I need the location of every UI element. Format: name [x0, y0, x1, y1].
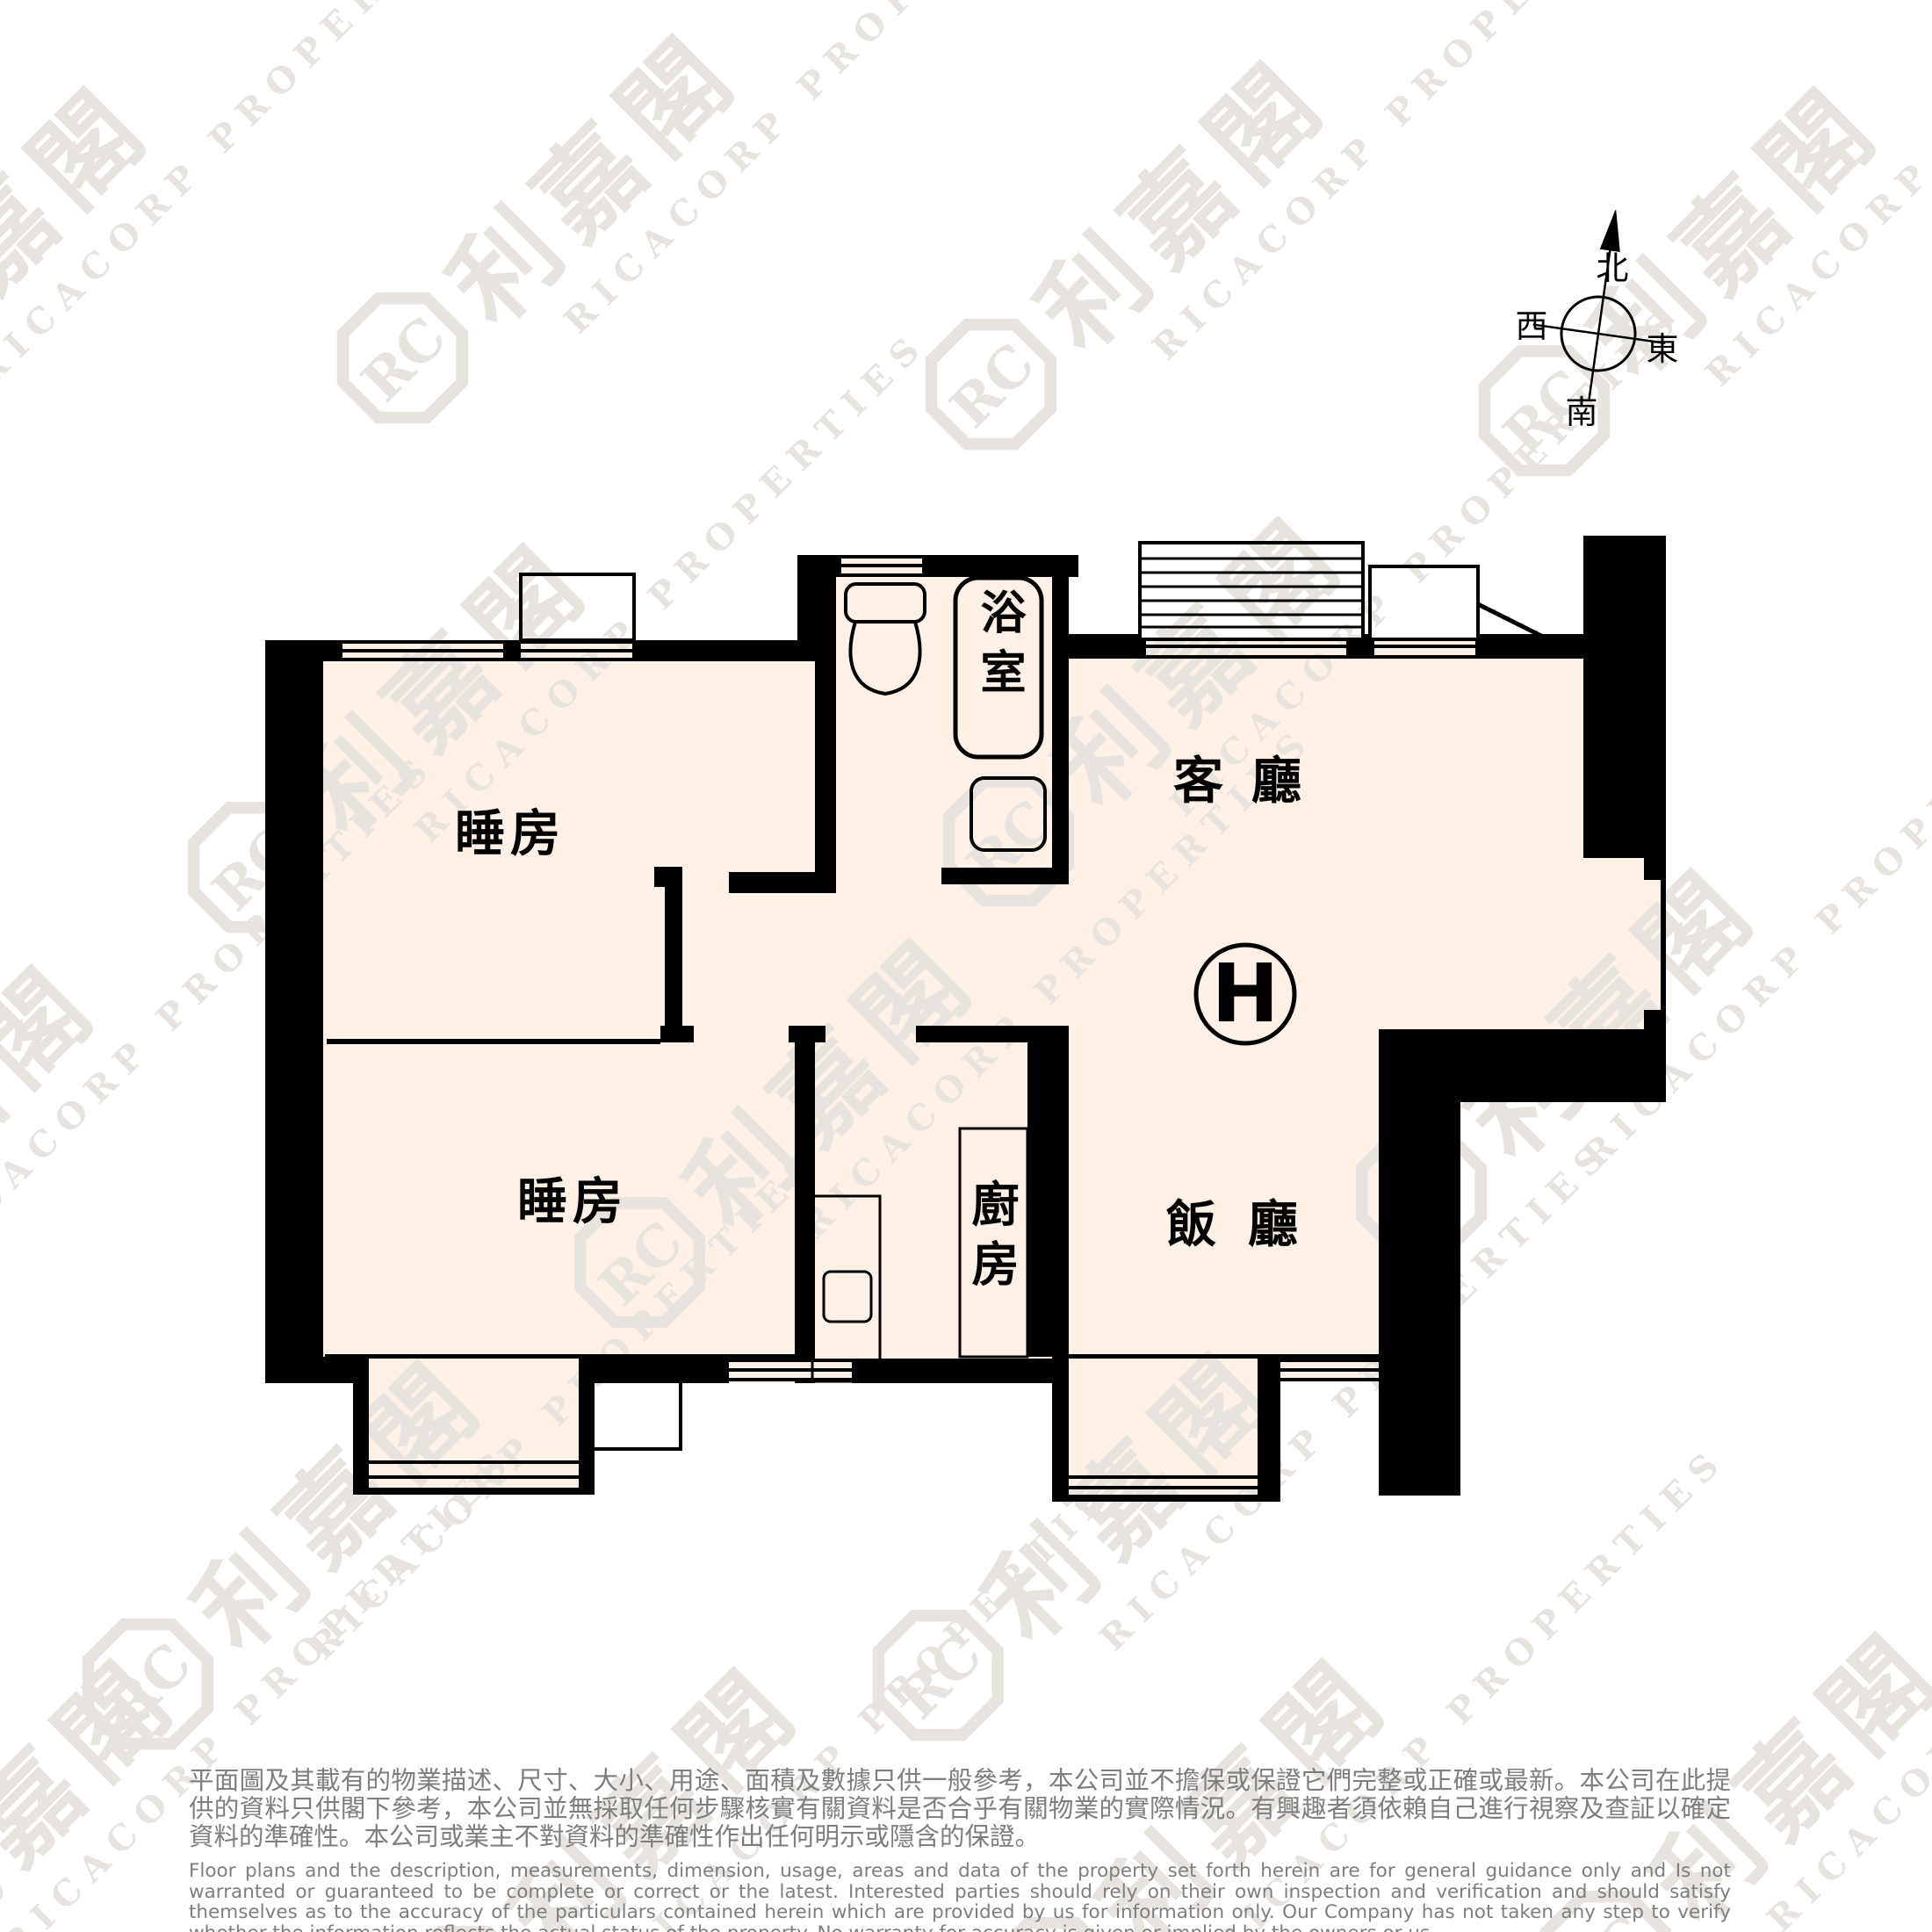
floorplan-page: RC [0, 0, 1932, 1932]
bay-window-glazing [369, 1475, 580, 1479]
disclaimer-block: 平面圖及其載有的物業描述、尺寸、大小、用途、面積及數據只供一般參考，本公司並不擔… [189, 1767, 1731, 1932]
window-box-living [1370, 566, 1478, 639]
service-notch [595, 1383, 682, 1449]
disclaimer-english: Floor plans and the description, measure… [189, 1861, 1731, 1932]
compass: 北 南 西 東 [1516, 201, 1683, 431]
compass-north-arrow [1600, 209, 1625, 252]
dining-bay-glazing [1069, 1486, 1258, 1489]
window-dining [1280, 1359, 1379, 1381]
label-living-room: 客廳 [1173, 757, 1330, 807]
label-dining-room: 飯廳 [1166, 1200, 1330, 1251]
label-bedroom-top: 睡房 [455, 810, 566, 860]
floor-plan: RC [0, 0, 1932, 1932]
compass-south-label: 南 [1566, 393, 1598, 431]
compass-west-label: 西 [1516, 307, 1548, 345]
window-kitchen [729, 1359, 852, 1381]
unit-letter: H [1212, 947, 1280, 1041]
dining-bay-glazing [1069, 1475, 1258, 1479]
compass-east-label: 東 [1647, 330, 1679, 368]
bay-window-glazing [369, 1460, 580, 1464]
window-bathroom [841, 555, 922, 577]
window-bedroom-top-2 [521, 640, 632, 661]
window-bedroom-top-1 [342, 640, 503, 661]
label-bathroom: 浴室 [976, 588, 1021, 708]
label-bedroom-bottom: 睡房 [517, 1178, 628, 1228]
compass-north-label: 北 [1597, 249, 1629, 287]
disclaimer-chinese: 平面圖及其載有的物業描述、尺寸、大小、用途、面積及數據只供一般參考，本公司並不擔… [189, 1767, 1731, 1851]
label-kitchen: 廚房 [967, 1179, 1014, 1299]
bay-box-bedroom-top [521, 574, 634, 640]
